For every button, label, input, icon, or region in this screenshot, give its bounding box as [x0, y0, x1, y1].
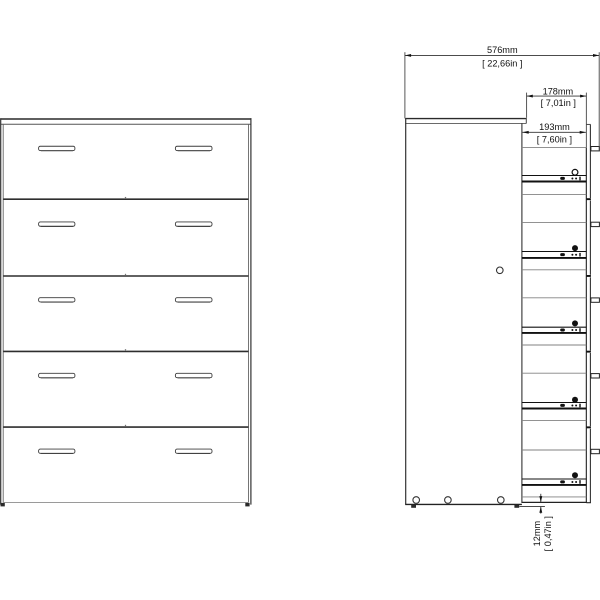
svg-text:12mm: 12mm [532, 520, 542, 546]
svg-text:193mm: 193mm [539, 122, 570, 132]
svg-text:[ 7,01in ]: [ 7,01in ] [541, 98, 576, 108]
svg-text:178mm: 178mm [543, 87, 574, 97]
svg-text:[ 22,66in ]: [ 22,66in ] [482, 58, 522, 68]
svg-text:576mm: 576mm [487, 45, 518, 55]
svg-text:[ 0,47in ]: [ 0,47in ] [543, 516, 553, 551]
svg-text:[ 7,60in ]: [ 7,60in ] [537, 135, 572, 145]
